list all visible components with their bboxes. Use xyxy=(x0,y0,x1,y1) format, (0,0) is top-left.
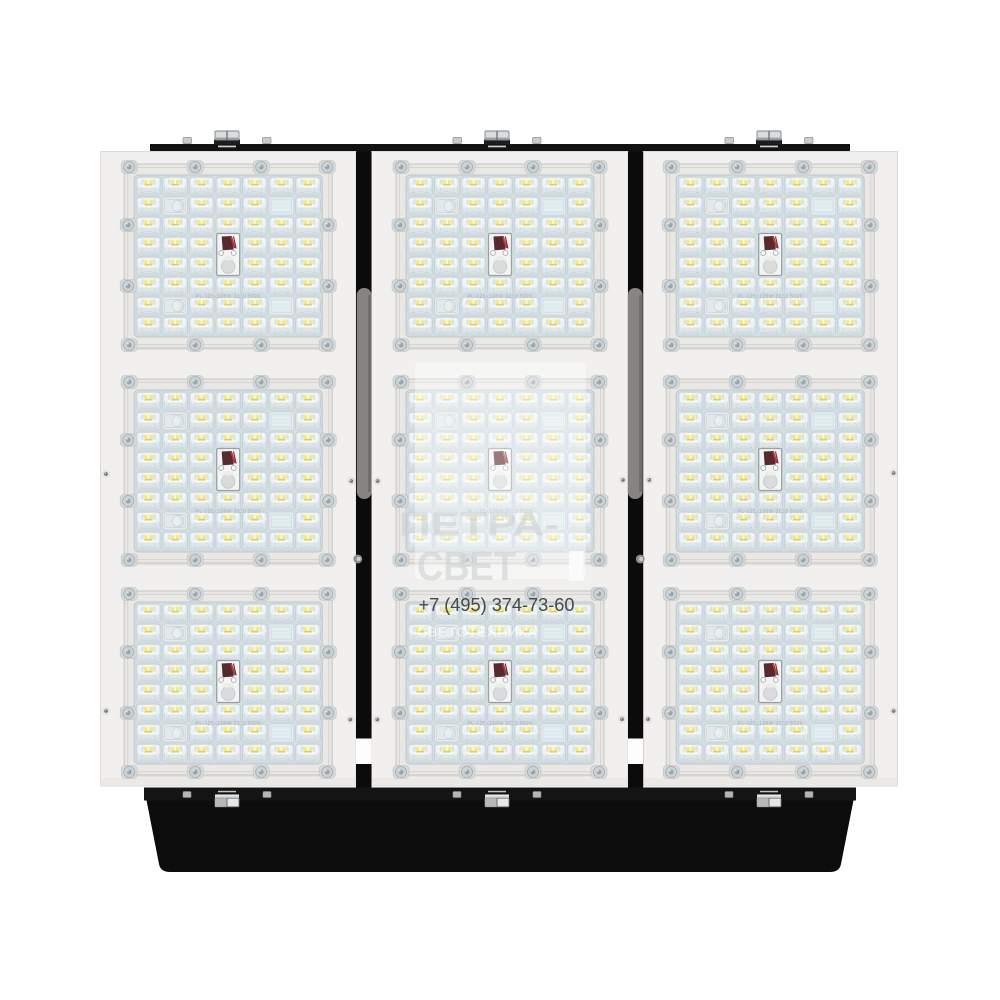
svg-text:ПЕТРА-: ПЕТРА- xyxy=(399,506,559,543)
svg-text:СВЕТОТЕХНИКА: СВЕТОТЕХНИКА xyxy=(417,625,538,640)
svg-text:СВЕТ: СВЕТ xyxy=(417,543,516,589)
svg-text:+7 (495) 374-73-60: +7 (495) 374-73-60 xyxy=(419,594,575,615)
